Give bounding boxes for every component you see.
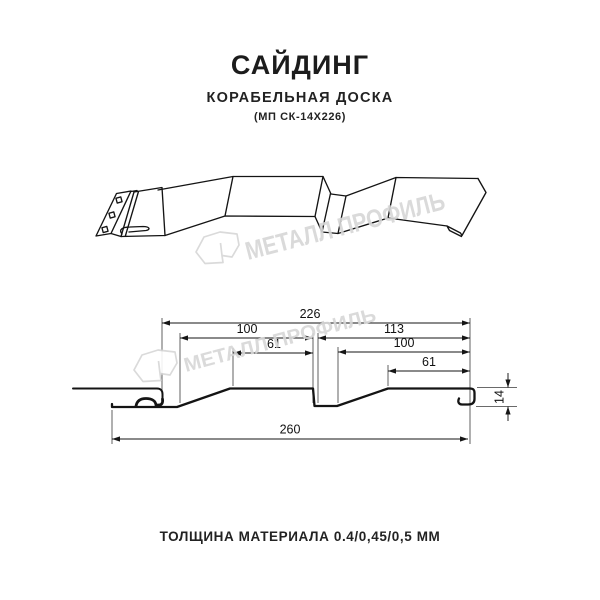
dim-100-right: 100 — [338, 336, 470, 355]
metal-profil-logo-icon — [196, 232, 239, 264]
dim-label-61-right: 61 — [422, 355, 436, 369]
dim-label-14: 14 — [493, 390, 507, 404]
material-thickness-note: ТОЛЩИНА МАТЕРИАЛА 0.4/0,45/0,5 ММ — [0, 529, 600, 544]
technical-drawing-canvas: 226 100 61 113 — [0, 0, 600, 600]
dim-label-260: 260 — [280, 423, 301, 437]
dim-label-100-right: 100 — [394, 336, 415, 350]
watermark-lower: МЕТАЛЛ ПРОФИЛЬ — [134, 304, 379, 381]
catalog-product-drawing-page: САЙДИНГ КОРАБЕЛЬНАЯ ДОСКА (МП СК-14Х226) — [0, 0, 600, 600]
dim-label-113: 113 — [384, 322, 404, 336]
watermark-brand-text: МЕТАЛЛ ПРОФИЛЬ — [182, 304, 379, 376]
metal-profil-logo-icon — [134, 350, 177, 382]
dim-label-100-left: 100 — [237, 322, 258, 336]
section-main-profile — [112, 389, 475, 408]
section-interlock-hook — [136, 399, 163, 407]
dim-61-right: 61 — [388, 355, 470, 374]
dim-14: 14 — [493, 373, 511, 421]
dim-260: 260 — [112, 423, 468, 442]
